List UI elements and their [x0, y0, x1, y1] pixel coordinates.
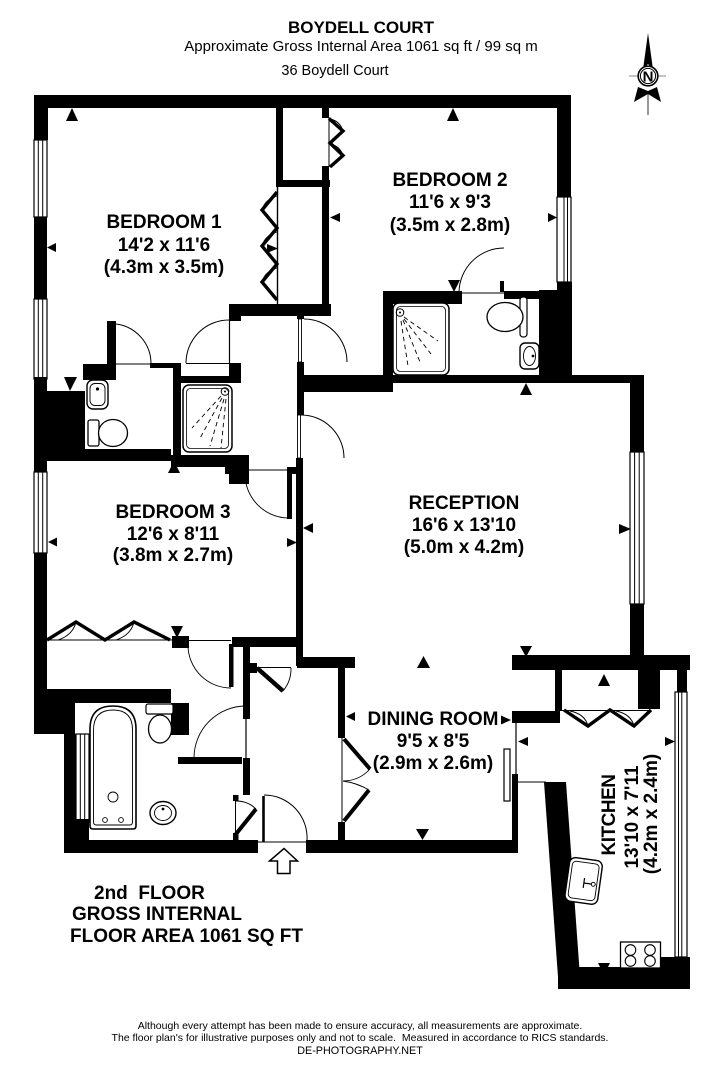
svg-text:9'5 x 8'5: 9'5 x 8'5: [397, 731, 470, 752]
svg-text:RECEPTION: RECEPTION: [409, 493, 520, 514]
svg-text:KITCHEN: KITCHEN: [599, 775, 620, 856]
svg-text:BEDROOM 1: BEDROOM 1: [106, 212, 222, 233]
svg-text:DE-PHOTOGRAPHY.NET: DE-PHOTOGRAPHY.NET: [297, 1045, 423, 1057]
svg-text:DINING ROOM: DINING ROOM: [368, 709, 499, 730]
svg-text:14'2 x 11'6: 14'2 x 11'6: [118, 235, 211, 256]
svg-text:2nd FLOOR: 2nd FLOOR: [94, 883, 205, 904]
svg-text:36 Boydell Court: 36 Boydell Court: [281, 63, 388, 79]
svg-text:BEDROOM 3: BEDROOM 3: [115, 502, 230, 523]
svg-text:N: N: [643, 69, 654, 86]
svg-text:GROSS INTERNAL: GROSS INTERNAL: [72, 904, 242, 925]
svg-text:11'6 x 9'3: 11'6 x 9'3: [409, 192, 491, 213]
svg-text:BOYDELL COURT: BOYDELL COURT: [288, 18, 435, 37]
svg-text:Although every attempt has bee: Although every attempt has been made to …: [138, 1020, 583, 1032]
svg-text:(2.9m x 2.6m): (2.9m x 2.6m): [373, 753, 493, 774]
svg-text:Approximate Gross Internal Are: Approximate Gross Internal Area 1061 sq …: [184, 38, 538, 55]
svg-text:12'6 x 8'11: 12'6 x 8'11: [127, 524, 220, 545]
svg-text:13'10 x 7'11: 13'10 x 7'11: [622, 765, 643, 869]
svg-text:(4.2m x 2.4m): (4.2m x 2.4m): [641, 754, 662, 874]
svg-text:(4.3m x 3.5m): (4.3m x 3.5m): [104, 257, 224, 278]
svg-text:(3.5m x 2.8m): (3.5m x 2.8m): [390, 215, 510, 236]
svg-text:BEDROOM 2: BEDROOM 2: [392, 170, 507, 191]
svg-text:(3.8m x 2.7m): (3.8m x 2.7m): [113, 545, 233, 566]
svg-text:16'6 x 13'10: 16'6 x 13'10: [412, 515, 516, 536]
svg-text:(5.0m x 4.2m): (5.0m x 4.2m): [404, 537, 524, 558]
svg-text:FLOOR AREA 1061 SQ FT: FLOOR AREA 1061 SQ FT: [70, 926, 303, 947]
svg-text:The floor plan's for illustrat: The floor plan's for illustrative purpos…: [112, 1032, 609, 1044]
